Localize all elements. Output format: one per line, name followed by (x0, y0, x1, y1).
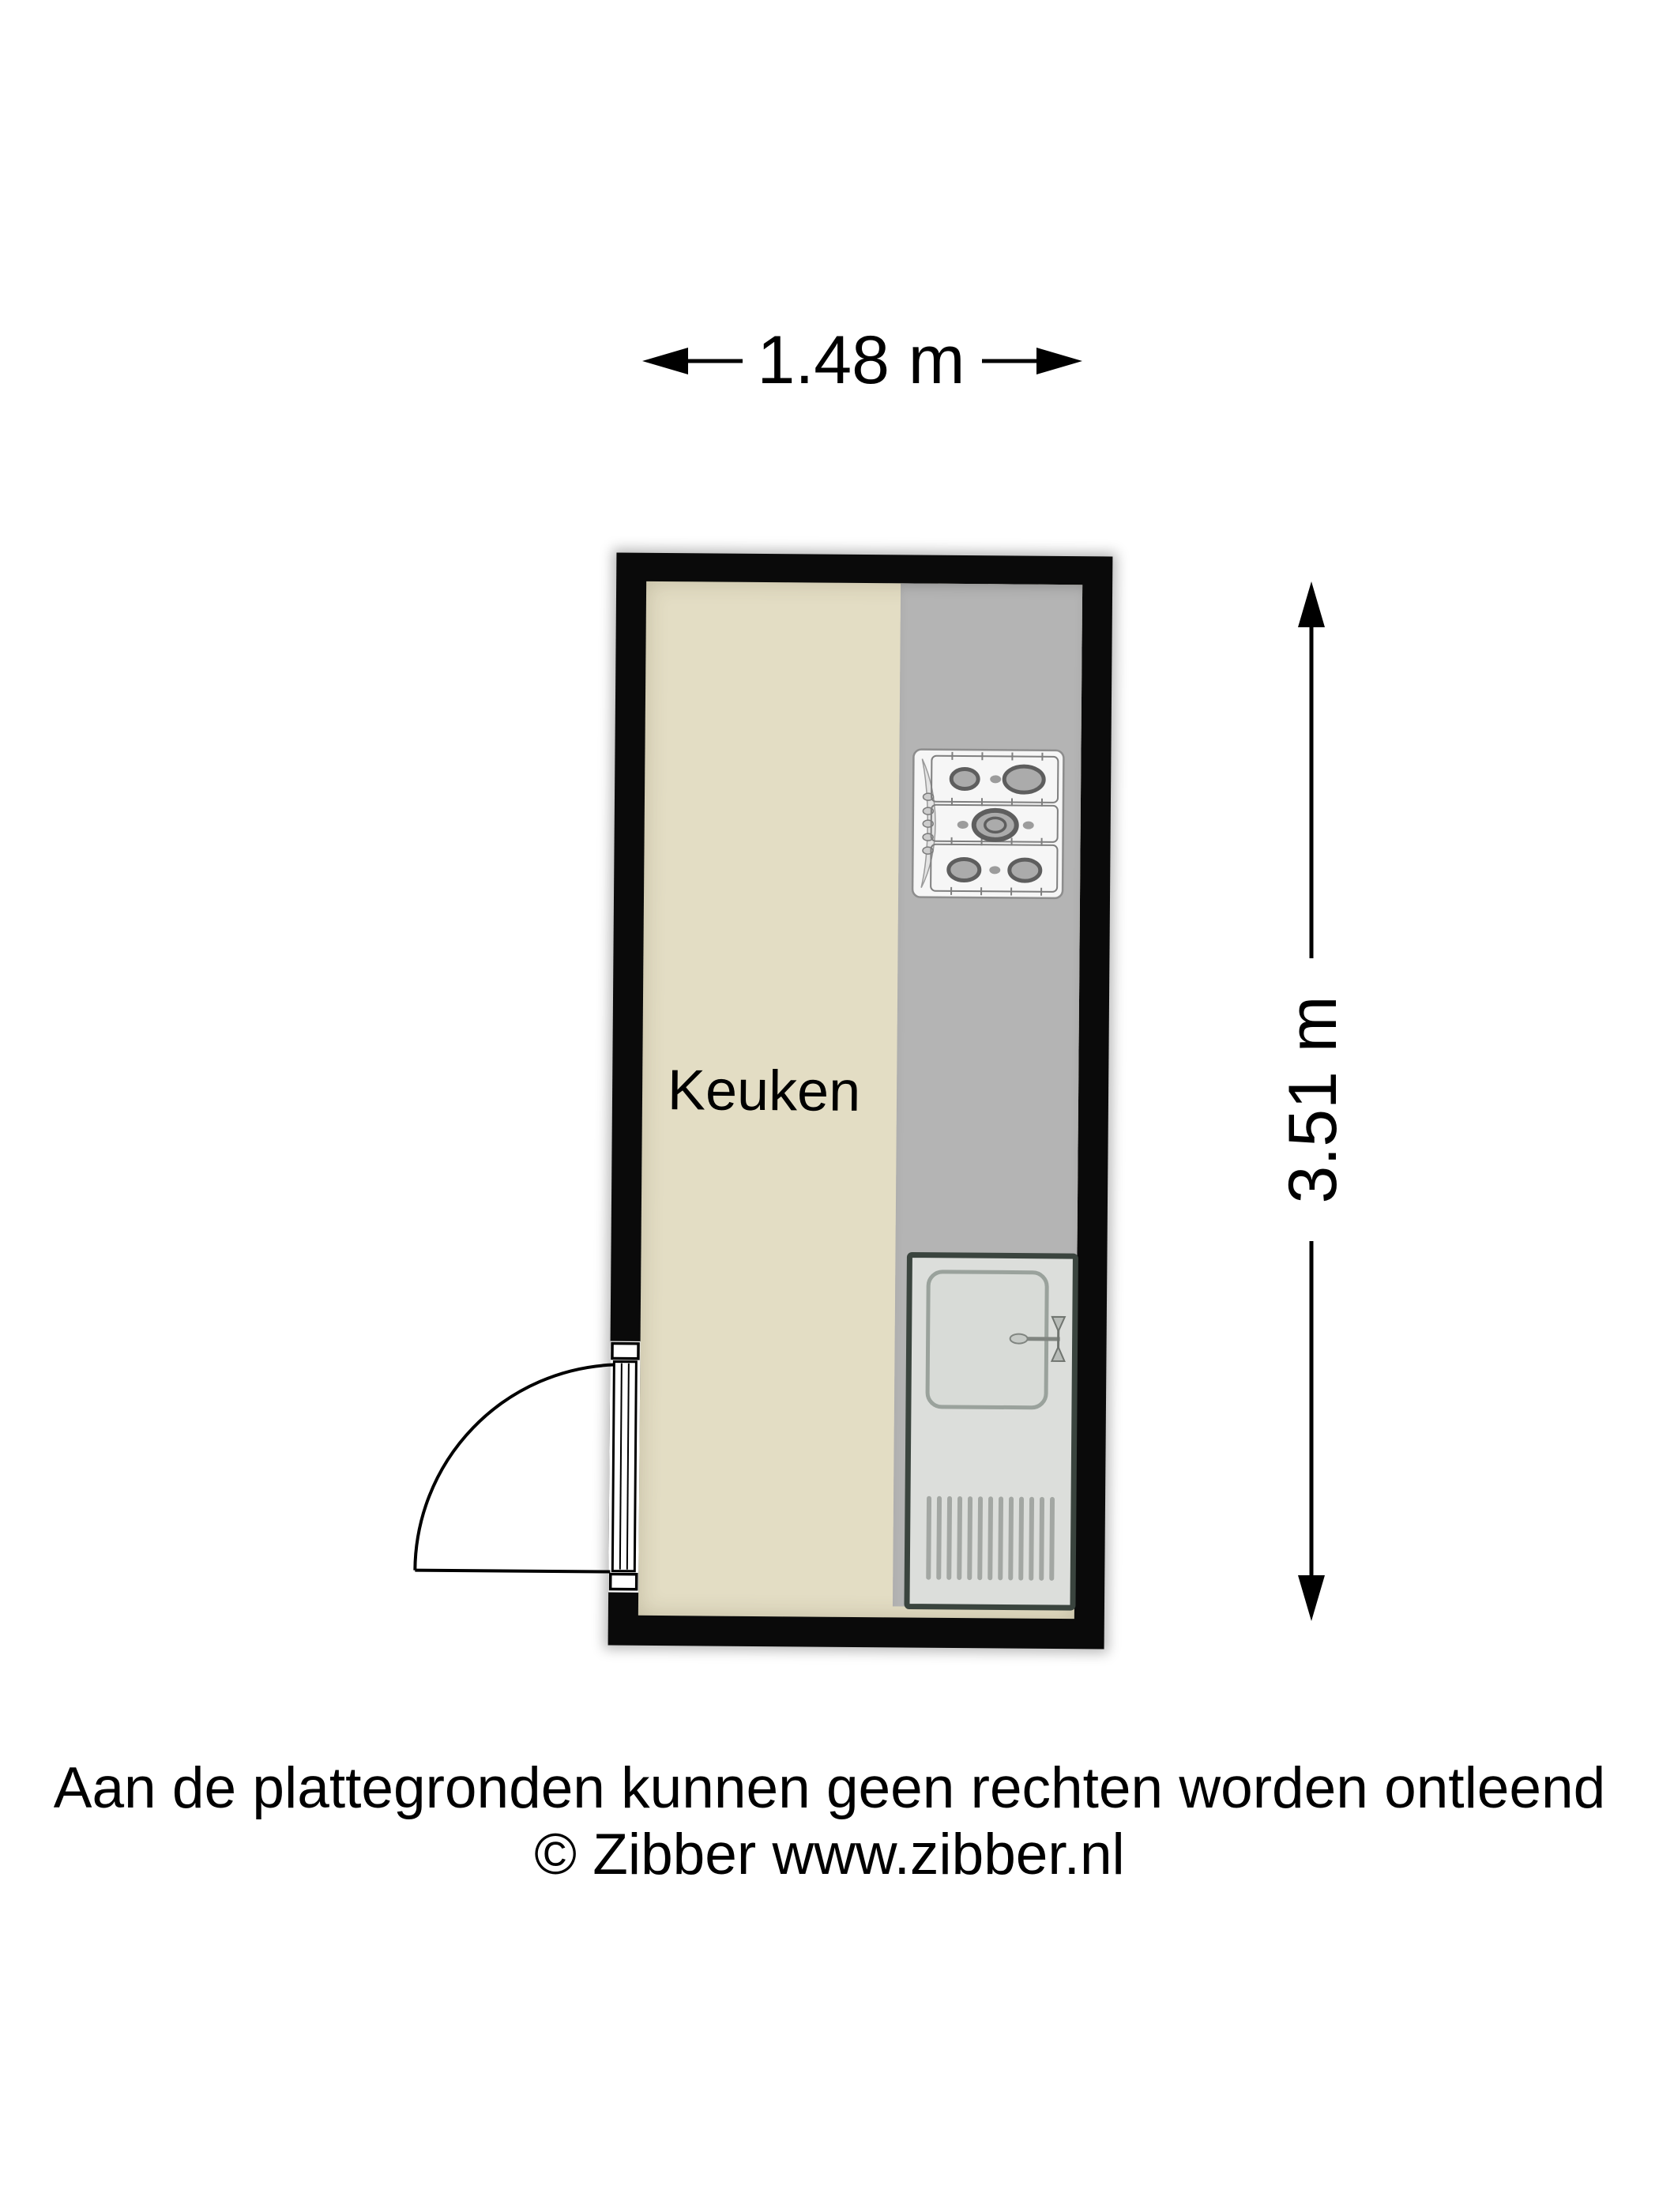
copyright-text: © Zibber www.zibber.nl (0, 1822, 1659, 1888)
floorplan-canvas: Keuken 1.48 m 3.51 m Aan de plattegronde… (0, 0, 1659, 2212)
width-dimension-label: 1.48 m (679, 324, 1043, 397)
footer: Aan de plattegronden kunnen geen rechten… (0, 1755, 1659, 1888)
height-dimension-label: 3.51 m (1277, 957, 1349, 1242)
disclaimer-text: Aan de plattegronden kunnen geen rechten… (0, 1755, 1659, 1822)
